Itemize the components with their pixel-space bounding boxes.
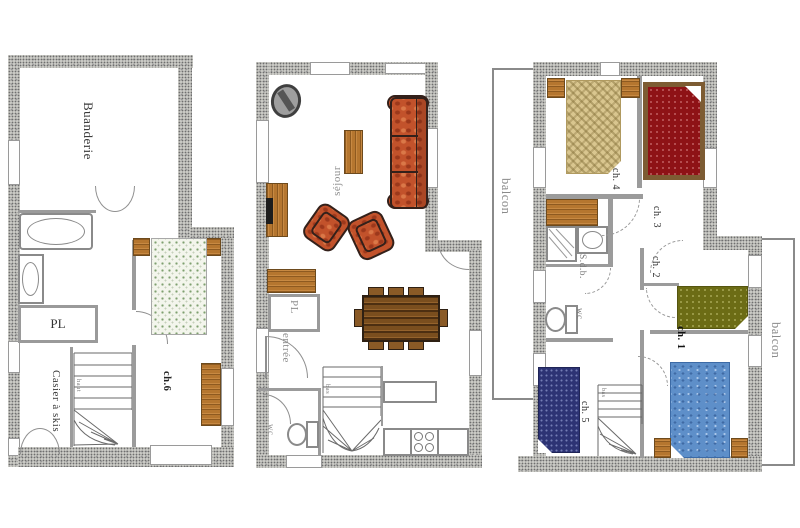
window bbox=[703, 148, 717, 188]
room-label-ch4: ch. 4 bbox=[610, 168, 621, 190]
balcony-outline bbox=[492, 68, 534, 70]
bed-fold bbox=[735, 316, 748, 329]
balcony-outline bbox=[762, 238, 795, 240]
balcony-outline bbox=[492, 68, 494, 400]
door-arc bbox=[650, 240, 683, 273]
door-arc bbox=[585, 268, 611, 294]
bed-fold bbox=[685, 86, 701, 102]
room-label-ch5: ch. 5 bbox=[579, 401, 590, 423]
stair-direction-label: bas bbox=[600, 388, 606, 398]
window bbox=[748, 255, 762, 288]
bed-fold bbox=[538, 439, 552, 453]
room-label-ch3: ch. 3 bbox=[651, 206, 662, 228]
nightstand bbox=[621, 78, 640, 98]
partition-wall bbox=[546, 338, 613, 342]
wall bbox=[703, 236, 762, 250]
nightstand bbox=[547, 78, 565, 98]
bathroom-shelf bbox=[546, 199, 598, 226]
balcony-outline bbox=[793, 238, 795, 466]
wall bbox=[518, 456, 762, 472]
bed-ch3 bbox=[643, 82, 705, 180]
nightstand bbox=[731, 438, 748, 458]
bed-fold bbox=[670, 444, 684, 458]
room-label-ch1: ch. 1 bbox=[675, 326, 686, 350]
partition-wall bbox=[643, 283, 679, 286]
bed-ch4 bbox=[566, 80, 621, 174]
wall bbox=[533, 62, 717, 76]
floorplan-canvas: Buanderie PL Casier à skis haut bbox=[0, 0, 800, 528]
window bbox=[600, 62, 620, 76]
balcony-outline bbox=[492, 398, 534, 400]
room-label-wc: wc bbox=[575, 308, 585, 320]
bed-ch1 bbox=[670, 362, 730, 458]
bed-ch5 bbox=[538, 367, 580, 453]
door-arc bbox=[638, 356, 668, 386]
door-arc bbox=[602, 198, 640, 236]
window bbox=[533, 147, 546, 188]
partition-wall bbox=[650, 330, 748, 334]
floor-plan-level-3: balcon balcon ch. 4 bbox=[0, 0, 800, 528]
balcony-outline bbox=[762, 464, 795, 466]
bed-ch2 bbox=[677, 286, 748, 329]
room-label-balcon-right: balcon bbox=[768, 322, 783, 358]
window bbox=[533, 270, 546, 303]
window bbox=[748, 335, 762, 367]
toilet-bowl bbox=[545, 307, 566, 332]
room-label-balcon-left: balcon bbox=[498, 178, 513, 214]
washbasin-bowl bbox=[582, 231, 603, 249]
door-arc bbox=[646, 288, 676, 318]
nightstand bbox=[654, 438, 671, 458]
shower bbox=[546, 226, 577, 262]
